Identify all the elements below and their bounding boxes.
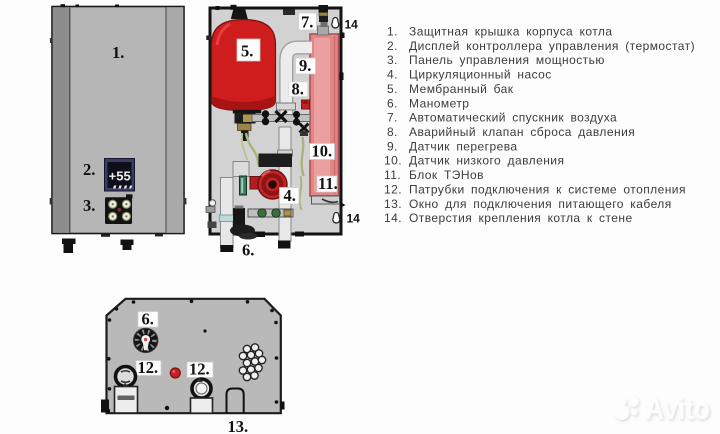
svg-text:12.: 12. (189, 360, 210, 379)
svg-text:Avito: Avito (645, 391, 710, 426)
svg-text:11.: 11. (384, 168, 401, 182)
svg-text:5.: 5. (387, 82, 398, 96)
svg-text:12.: 12. (384, 182, 402, 196)
svg-text:3.: 3. (83, 196, 95, 215)
svg-text:2.: 2. (387, 39, 398, 53)
svg-text:14: 14 (345, 18, 359, 32)
svg-text:+55: +55 (109, 169, 131, 184)
svg-text:10.: 10. (384, 154, 402, 168)
svg-text:13.: 13. (384, 197, 402, 211)
svg-text:11.: 11. (318, 174, 338, 193)
svg-text:Окно для подключения питающего: Окно для подключения питающего кабеля (409, 197, 672, 211)
svg-text:7.: 7. (301, 13, 313, 32)
svg-text:Автоматический спускник воздух: Автоматический спускник воздуха (409, 111, 617, 125)
svg-text:Дисплей контроллера управления: Дисплей контроллера управления (термоста… (409, 39, 695, 53)
svg-text:Панель управления мощностью: Панель управления мощностью (409, 53, 605, 67)
svg-text:2.: 2. (83, 160, 95, 179)
svg-text:Патрубки подключения к системе: Патрубки подключения к системе отопления (409, 182, 686, 196)
svg-text:1.: 1. (387, 25, 398, 39)
svg-text:6.: 6. (387, 96, 398, 110)
svg-text:Аварийный клапан сброса давлен: Аварийный клапан сброса давления (409, 125, 635, 139)
svg-text:Блок ТЭНов: Блок ТЭНов (409, 168, 484, 182)
svg-text:6.: 6. (242, 241, 254, 260)
svg-text:14: 14 (347, 212, 361, 226)
svg-text:8.: 8. (387, 125, 398, 139)
svg-text:3.: 3. (387, 53, 398, 67)
svg-text:4.: 4. (387, 68, 398, 82)
svg-text:14.: 14. (384, 211, 402, 225)
svg-text:9.: 9. (299, 56, 311, 75)
svg-text:9.: 9. (387, 139, 398, 153)
svg-text:Датчик низкого давления: Датчик низкого давления (409, 154, 564, 168)
svg-text:Отверстия крепления котла к ст: Отверстия крепления котла к стене (409, 211, 633, 225)
svg-text:7.: 7. (387, 111, 398, 125)
svg-text:5.: 5. (241, 42, 253, 61)
svg-text:12.: 12. (138, 358, 159, 377)
svg-text:6.: 6. (142, 310, 154, 329)
svg-text:13.: 13. (228, 417, 249, 434)
svg-text:Мембранный бак: Мембранный бак (409, 82, 514, 96)
svg-text:10.: 10. (312, 142, 333, 161)
svg-text:Манометр: Манометр (409, 96, 469, 110)
svg-text:1.: 1. (112, 43, 124, 62)
svg-text:8.: 8. (292, 80, 304, 99)
svg-text:Циркуляционный насос: Циркуляционный насос (409, 68, 552, 82)
svg-text:Защитная крышка корпуса котла: Защитная крышка корпуса котла (409, 25, 612, 39)
svg-text:4.: 4. (284, 186, 296, 205)
svg-text:Датчик перегрева: Датчик перегрева (409, 139, 518, 153)
